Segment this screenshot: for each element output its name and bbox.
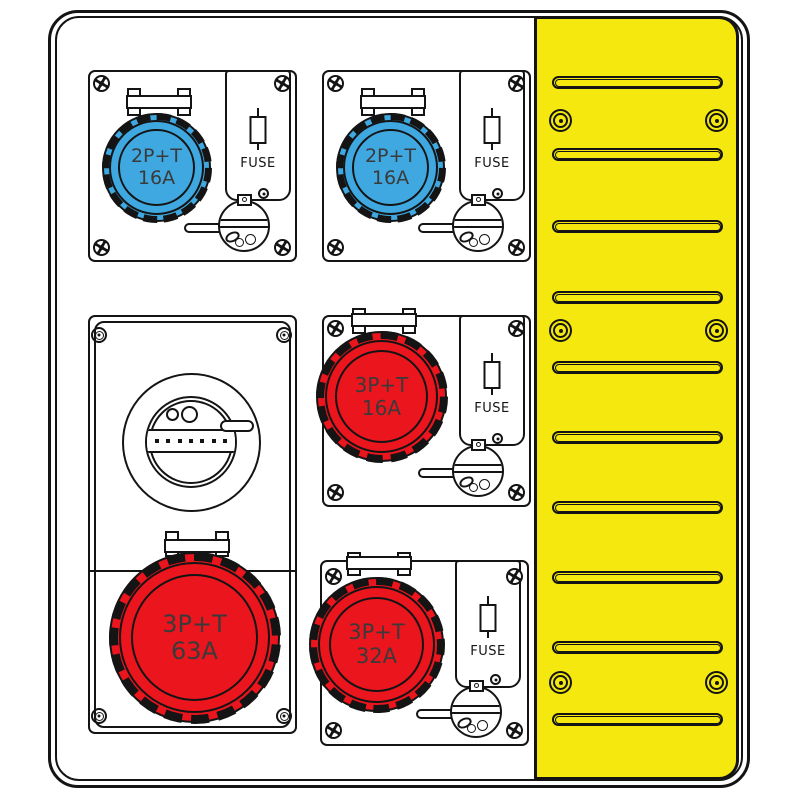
rotary-switch-handle-slot (145, 429, 237, 453)
distribution-board: FUSE 2P+T 16A (0, 0, 800, 800)
screw-icon (705, 319, 728, 342)
vent-slot (552, 571, 723, 584)
rotary-switch-handle[interactable] (220, 420, 254, 432)
interlock-pin (245, 234, 256, 245)
screw-icon (258, 188, 269, 199)
socket-cap-2p16a[interactable]: 2P+T 16A (118, 129, 195, 206)
screw-icon (705, 109, 728, 132)
screw-icon (91, 327, 107, 343)
socket-latch-bracket (360, 95, 426, 109)
interlock-latch (469, 680, 484, 692)
rotary-switch[interactable] (145, 396, 237, 488)
vent-slot (552, 501, 723, 514)
socket-rating-label: 16A (372, 168, 409, 189)
vent-slot (552, 291, 723, 304)
socket-rating-label: 3P+T (162, 611, 227, 638)
socket-rating-label: 63A (171, 638, 218, 665)
interlock-knob[interactable] (450, 686, 502, 738)
screw-icon (492, 188, 503, 199)
socket-latch-bracket (126, 95, 192, 109)
interlock-pin (235, 238, 244, 247)
fuse-label: FUSE (457, 644, 519, 659)
module-socket-2p16a-left: FUSE 2P+T 16A (88, 70, 297, 262)
interlock-knob-slot (452, 219, 504, 228)
screw-icon (549, 319, 572, 342)
screw-icon (325, 568, 342, 585)
interlock-pin (469, 483, 478, 492)
fuse-symbol-icon (480, 604, 497, 632)
screw-icon (276, 708, 292, 724)
interlock-knob[interactable] (218, 200, 270, 252)
fuse-label: FUSE (227, 156, 289, 171)
rotary-switch-pin (166, 408, 179, 421)
socket-rating-label: 16A (138, 168, 175, 189)
screw-icon (276, 327, 292, 343)
vent-slot (552, 641, 723, 654)
screw-icon (327, 320, 344, 337)
vent-slot (552, 148, 723, 161)
vent-slot (552, 76, 723, 89)
socket-cap-3p32a[interactable]: 3P+T 32A (329, 597, 424, 692)
interlock-knob-slot (218, 219, 270, 228)
interlock-switch (452, 445, 504, 497)
socket-latch-bracket (164, 539, 230, 553)
screw-icon (91, 708, 107, 724)
screw-icon (93, 239, 110, 256)
screw-icon (508, 239, 525, 256)
interlock-switch (218, 200, 270, 252)
socket-rating-label: 2P+T (365, 146, 416, 167)
fuse-label: FUSE (461, 401, 523, 416)
interlock-pin (467, 724, 476, 733)
socket-latch-bracket (346, 556, 412, 570)
interlock-pin (479, 479, 490, 490)
socket-cap-3p63a[interactable]: 3P+T 63A (131, 574, 258, 701)
socket-cap-2p16a[interactable]: 2P+T 16A (352, 129, 429, 206)
vent-slot (552, 220, 723, 233)
socket-latch-bracket (351, 313, 417, 327)
interlock-latch (471, 439, 486, 451)
screw-icon (508, 75, 525, 92)
screw-icon (506, 568, 523, 585)
vent-slot (552, 431, 723, 444)
interlock-knob[interactable] (452, 445, 504, 497)
interlock-pin (469, 238, 478, 247)
socket-rating-label: 2P+T (131, 146, 182, 167)
interlock-pin (479, 234, 490, 245)
interlock-latch (237, 194, 252, 206)
fuse-symbol-icon (484, 116, 501, 144)
screw-icon (274, 239, 291, 256)
screw-icon (705, 671, 728, 694)
interlock-switch (452, 200, 504, 252)
vent-slot (552, 713, 723, 726)
screw-icon (327, 239, 344, 256)
interlock-latch (471, 194, 486, 206)
interlock-switch (450, 686, 502, 738)
screw-icon (506, 722, 523, 739)
interlock-knob-slot (450, 705, 502, 714)
screw-icon (327, 75, 344, 92)
socket-rating-label: 3P+T (348, 621, 404, 645)
fuse-symbol-icon (484, 361, 501, 389)
screw-icon (325, 722, 342, 739)
screw-icon (549, 671, 572, 694)
rotary-switch-pin (181, 406, 198, 423)
module-socket-2p16a-right: FUSE 2P+T 16A (322, 70, 531, 262)
socket-rating-label: 3P+T (355, 374, 409, 396)
interlock-knob[interactable] (452, 200, 504, 252)
fuse-symbol-icon (250, 116, 267, 144)
interlock-knob-slot (452, 464, 504, 473)
screw-icon (508, 484, 525, 501)
screw-icon (549, 109, 572, 132)
fuse-label: FUSE (461, 156, 523, 171)
screw-icon (93, 75, 110, 92)
module-socket-3p16a: FUSE 3P+T 16A (322, 315, 531, 507)
interlock-pin (477, 720, 488, 731)
screw-icon (508, 320, 525, 337)
socket-rating-label: 32A (356, 645, 397, 669)
screw-icon (490, 674, 501, 685)
cable-cover-panel (534, 16, 739, 780)
socket-cap-3p16a[interactable]: 3P+T 16A (335, 350, 428, 443)
module-socket-3p32a: FUSE 3P+T 32A (320, 560, 529, 746)
module-switched-socket-3p63a: 3P+T 63A (88, 315, 297, 734)
screw-icon (274, 75, 291, 92)
screw-icon (327, 484, 344, 501)
vent-slot (552, 361, 723, 374)
socket-rating-label: 16A (362, 397, 401, 419)
screw-icon (492, 433, 503, 444)
